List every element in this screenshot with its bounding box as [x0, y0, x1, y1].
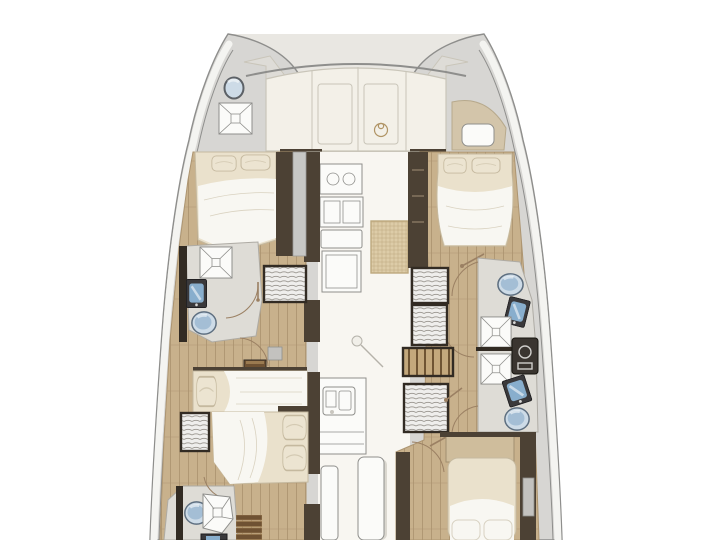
berth-sheet: [198, 178, 276, 252]
port-aft-cabin: [212, 406, 308, 484]
galley-counter: [320, 197, 363, 227]
galley-stove-icon: [320, 164, 362, 194]
head-wall: [176, 486, 183, 540]
shower-icon: [200, 247, 232, 278]
pillow: [452, 520, 480, 540]
pillow: [283, 446, 306, 471]
pillow: [212, 156, 236, 171]
berth-sheet: [438, 186, 513, 245]
shower-icon: [481, 354, 511, 384]
foredeck: [244, 56, 468, 157]
port-hull-interior: [160, 152, 320, 540]
starboard-hull-interior: [396, 152, 539, 540]
port-forward-head: [179, 242, 262, 342]
pillow: [241, 155, 270, 170]
foredeck-panel: [266, 68, 446, 151]
faucet-icon: [330, 410, 334, 414]
toilet-icon: [505, 408, 529, 430]
bow-cushion: [462, 124, 494, 146]
floorplan-canvas: [0, 0, 720, 540]
cabin-bulkhead: [276, 152, 293, 256]
toilet-icon: [192, 312, 216, 334]
wardrobe-locker: [264, 266, 306, 302]
pillow: [472, 158, 500, 173]
galley-cabinet: [322, 251, 361, 292]
galley-drawer: [321, 230, 362, 248]
door-hinge: [256, 298, 260, 302]
slatted-locker: [403, 348, 453, 376]
toilet-icon: [498, 274, 523, 295]
catamaran-floorplan: [0, 0, 720, 540]
wardrobe-locker: [404, 384, 448, 432]
washbasin-icon: [186, 279, 206, 307]
hull-window: [523, 478, 534, 516]
pillow: [197, 377, 217, 406]
deck-fill-icon: [352, 336, 362, 346]
dresser-top: [246, 361, 264, 364]
wardrobe-locker: [412, 268, 448, 303]
pillow: [444, 158, 466, 173]
berth-frame: [440, 432, 520, 437]
wardrobe-mirror: [293, 152, 306, 256]
shower-icon: [481, 317, 511, 347]
port-forward-cabin: [195, 152, 306, 256]
head-wall: [179, 246, 187, 342]
port-inner-wall: [304, 300, 320, 342]
port-inner-wall: [304, 504, 320, 540]
pillow: [484, 520, 512, 540]
washbasin-bowl: [206, 536, 220, 540]
galley-island: [358, 457, 384, 540]
wardrobe-locker: [181, 413, 209, 451]
berth-sheet: [224, 371, 307, 412]
galley-counter-column: [321, 466, 338, 540]
pillow: [283, 416, 306, 440]
starboard-inner-wall: [396, 452, 410, 540]
nightstand: [268, 347, 282, 360]
saloon-table: [371, 221, 408, 273]
wardrobe-locker: [412, 305, 447, 345]
